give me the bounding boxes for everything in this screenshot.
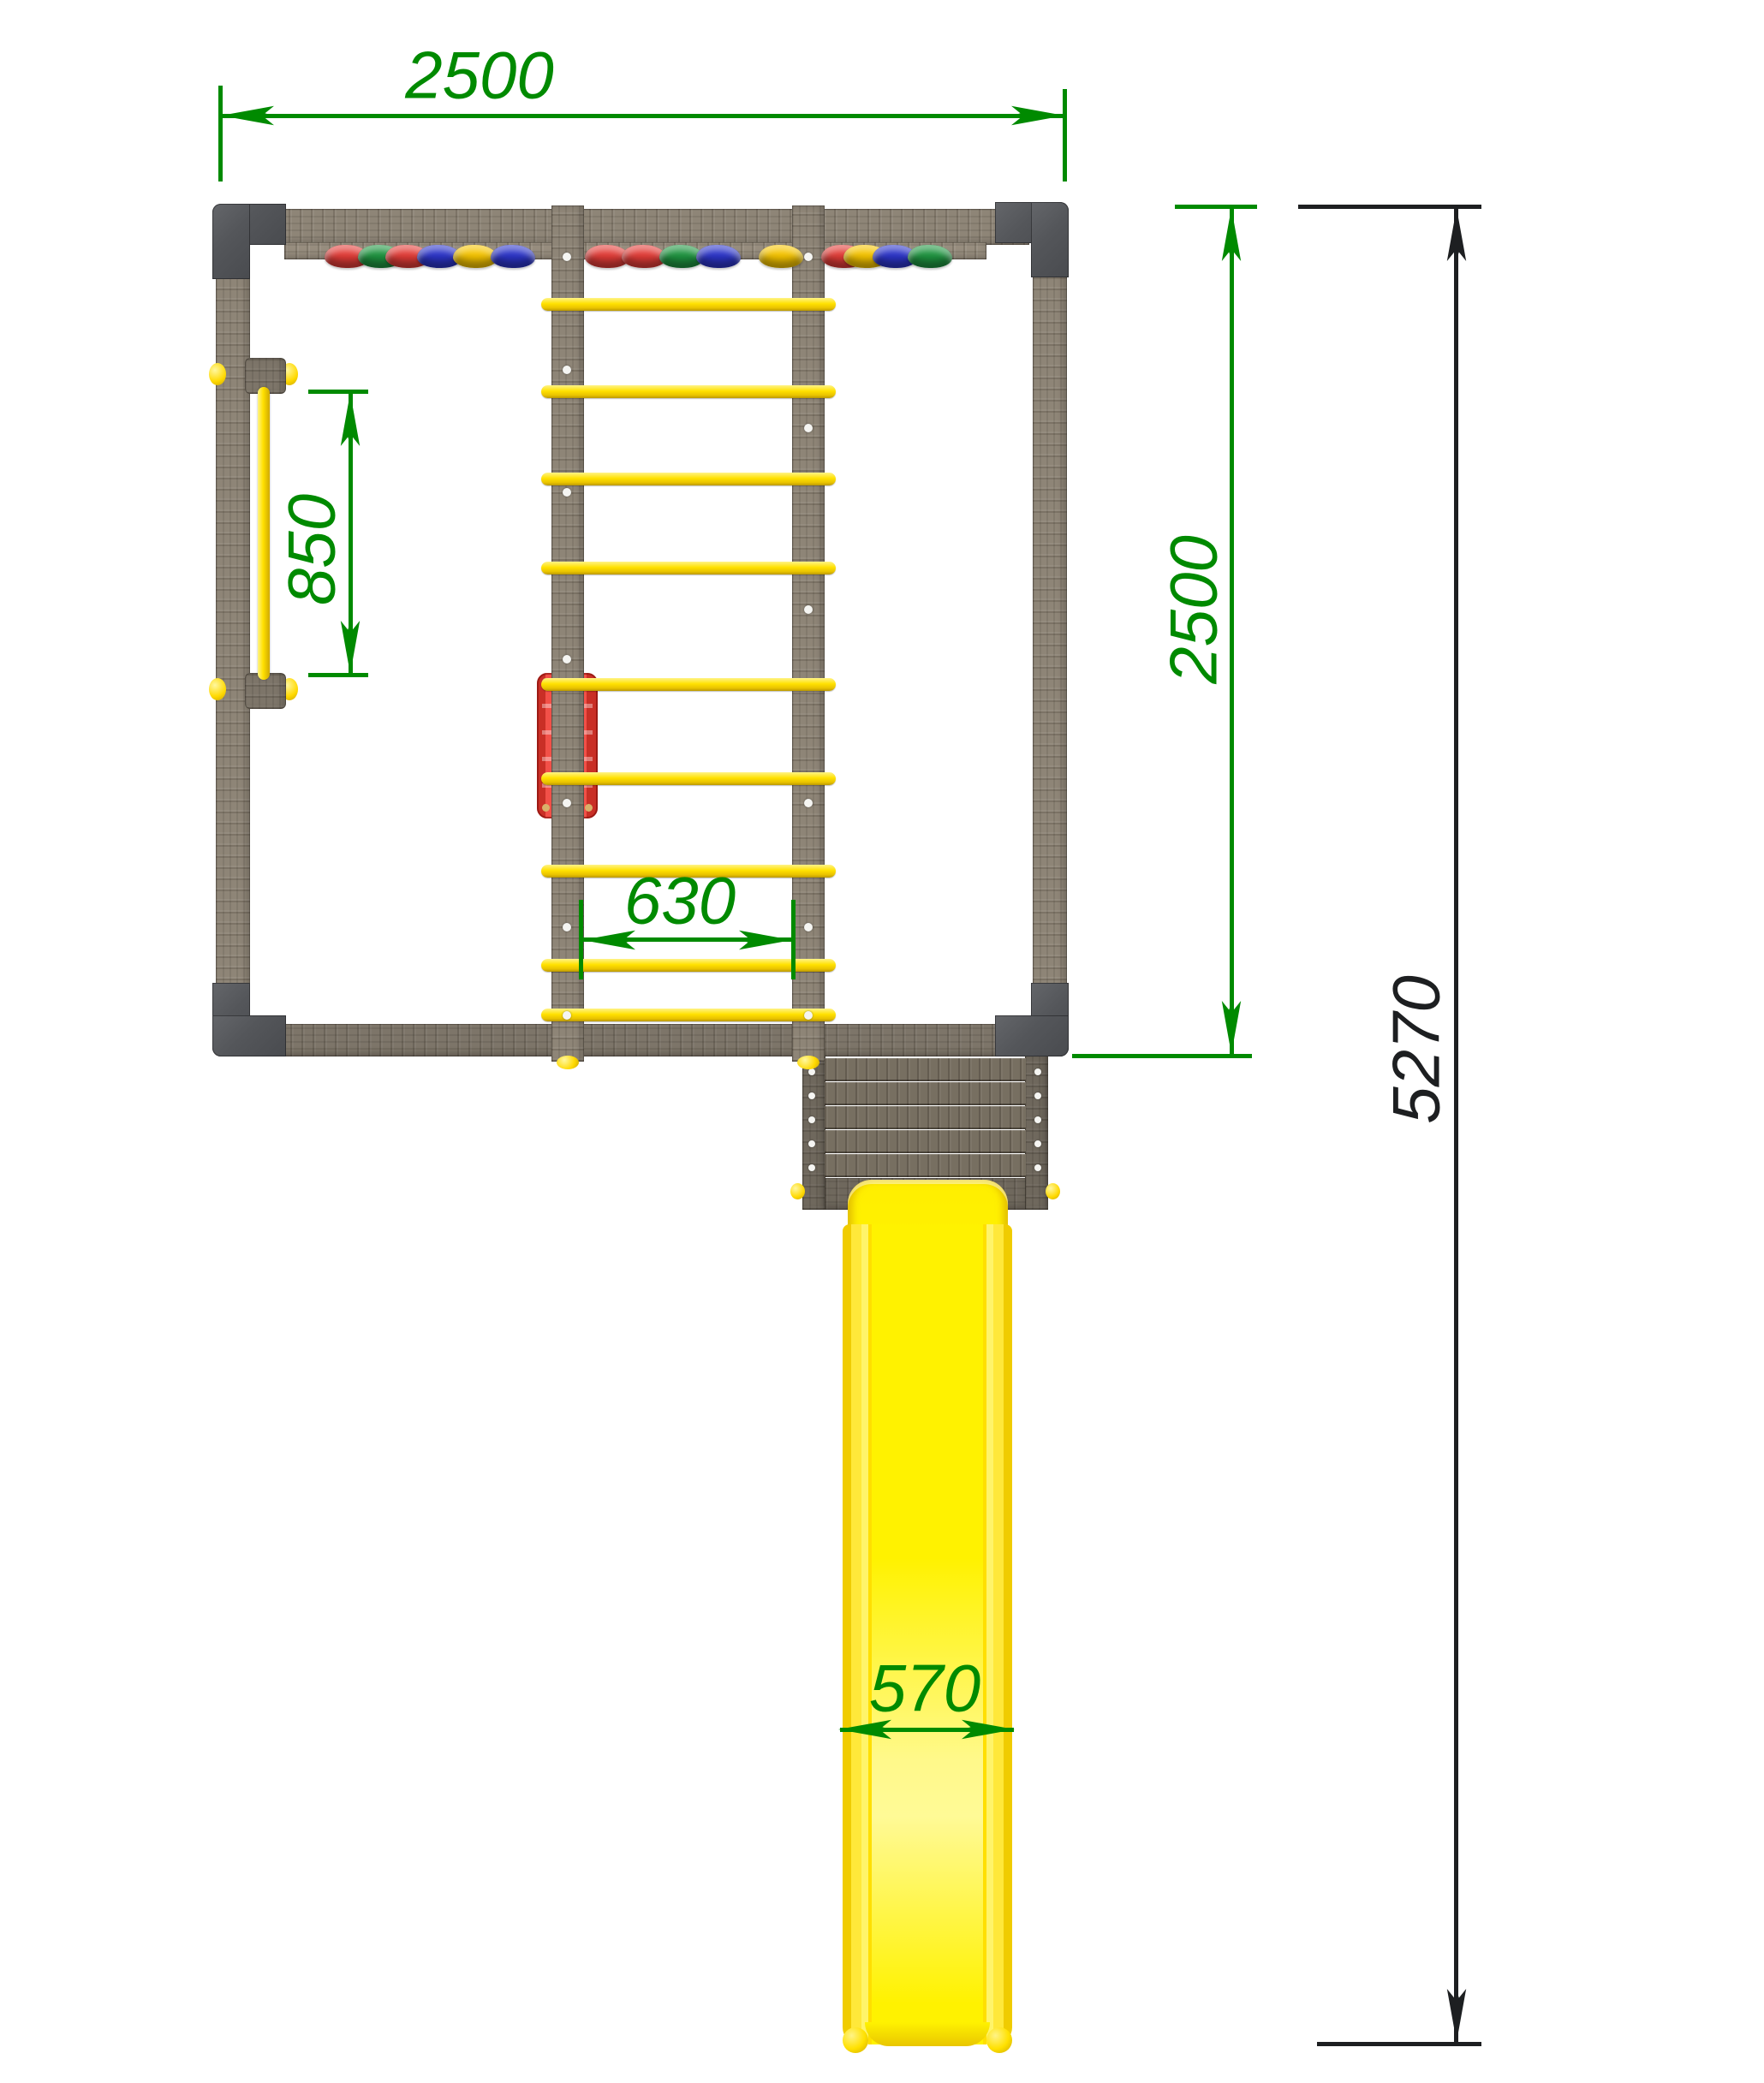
platform-bolt-left	[790, 1183, 805, 1199]
rail-screw	[804, 799, 813, 807]
slide-bottom-edge	[865, 2022, 990, 2046]
arrowhead-right	[1011, 104, 1064, 128]
extension-line	[308, 390, 368, 394]
rail-screw	[563, 923, 571, 931]
platform-screw	[808, 1164, 815, 1171]
ladder-rung	[541, 385, 836, 398]
extension-line	[1072, 1054, 1252, 1058]
corner-bracket-top-left-v	[212, 204, 250, 279]
arrowhead-up	[1219, 208, 1243, 261]
arrowhead-right	[739, 928, 792, 952]
platform-screw	[1034, 1164, 1041, 1171]
handle-bar	[258, 387, 270, 680]
corner-bracket-bottom-left-h	[212, 1015, 286, 1056]
rail-screw	[804, 1011, 813, 1020]
rail-screw	[563, 488, 571, 497]
ladder-right-rail	[792, 205, 825, 1062]
corner-bracket-top-right-v	[1031, 202, 1069, 277]
drawing-canvas: 2500 2500 850 630 570 5270	[0, 0, 1764, 2083]
rail-screw	[563, 655, 571, 664]
extension-line	[218, 86, 223, 182]
arrowhead-down	[1219, 1001, 1243, 1054]
platform-screw	[808, 1140, 815, 1147]
ladder-rung	[541, 562, 836, 574]
platform-screw	[1034, 1140, 1041, 1147]
rail-screw	[563, 366, 571, 374]
platform-plank	[825, 1106, 1026, 1129]
platform-plank	[825, 1058, 1026, 1081]
slide-surface-highlight	[872, 1558, 983, 2003]
ladder-rung	[541, 473, 836, 485]
platform-plank	[825, 1082, 1026, 1105]
grip-screw	[585, 804, 593, 812]
handle-bolt	[209, 363, 226, 385]
frame-bottom-beam	[257, 1024, 1033, 1056]
arrowhead-up	[1445, 208, 1469, 261]
handle-bolt	[209, 678, 226, 700]
platform-screw	[1034, 1068, 1041, 1075]
rail-screw	[563, 799, 571, 807]
platform-plank	[825, 1130, 1026, 1153]
rail-screw	[804, 424, 813, 432]
dim-label-handle-bar: 850	[273, 494, 351, 605]
dim-label-overall-length: 5270	[1378, 975, 1456, 1124]
climbing-hold	[491, 245, 535, 268]
ladder-rung	[541, 772, 836, 785]
rail-screw	[563, 253, 571, 261]
arrowhead-down	[1445, 1989, 1469, 2042]
frame-left-post	[216, 212, 250, 991]
extension-line	[1063, 89, 1067, 182]
ladder-rung	[541, 1009, 836, 1021]
arrowhead-left	[221, 104, 274, 128]
slide-bottom-cap-right	[986, 2027, 1012, 2053]
ladder-rung	[541, 298, 836, 311]
dimension-line	[220, 114, 1065, 118]
platform-side-right	[1025, 1056, 1048, 1210]
platform-screw	[808, 1116, 815, 1123]
platform-screw	[808, 1092, 815, 1099]
climbing-hold	[908, 245, 952, 268]
frame-right-post	[1033, 212, 1067, 991]
rail-screw	[563, 1011, 571, 1020]
platform-screw	[1034, 1116, 1041, 1123]
rail-end-cap-left	[557, 1056, 579, 1069]
grip-screw	[542, 804, 550, 812]
dimension-line	[1454, 206, 1458, 2044]
dim-label-slide-width: 570	[869, 1650, 980, 1728]
platform-side-left	[802, 1056, 825, 1210]
ladder-rung	[541, 678, 836, 691]
rail-screw	[804, 253, 813, 261]
climbing-hold	[696, 245, 741, 268]
frame-top-beam	[233, 209, 1029, 245]
dim-label-frame-width: 2500	[405, 37, 554, 115]
rail-end-cap-right	[797, 1056, 819, 1069]
rail-screw	[804, 605, 813, 614]
platform-plank	[825, 1154, 1026, 1177]
extension-line	[308, 673, 368, 677]
arrowhead-down	[338, 621, 362, 674]
climbing-hold	[759, 245, 803, 268]
dim-label-ladder-span: 630	[624, 862, 736, 940]
corner-bracket-bottom-right-h	[995, 1015, 1069, 1056]
dim-label-frame-depth: 2500	[1155, 535, 1233, 684]
arrowhead-up	[338, 393, 362, 446]
platform-screw	[1034, 1092, 1041, 1099]
extension-line	[1175, 205, 1257, 209]
slide-bottom-cap-left	[843, 2027, 868, 2053]
rail-screw	[804, 923, 813, 931]
platform-screw	[808, 1068, 815, 1075]
platform-bolt-right	[1046, 1183, 1060, 1199]
